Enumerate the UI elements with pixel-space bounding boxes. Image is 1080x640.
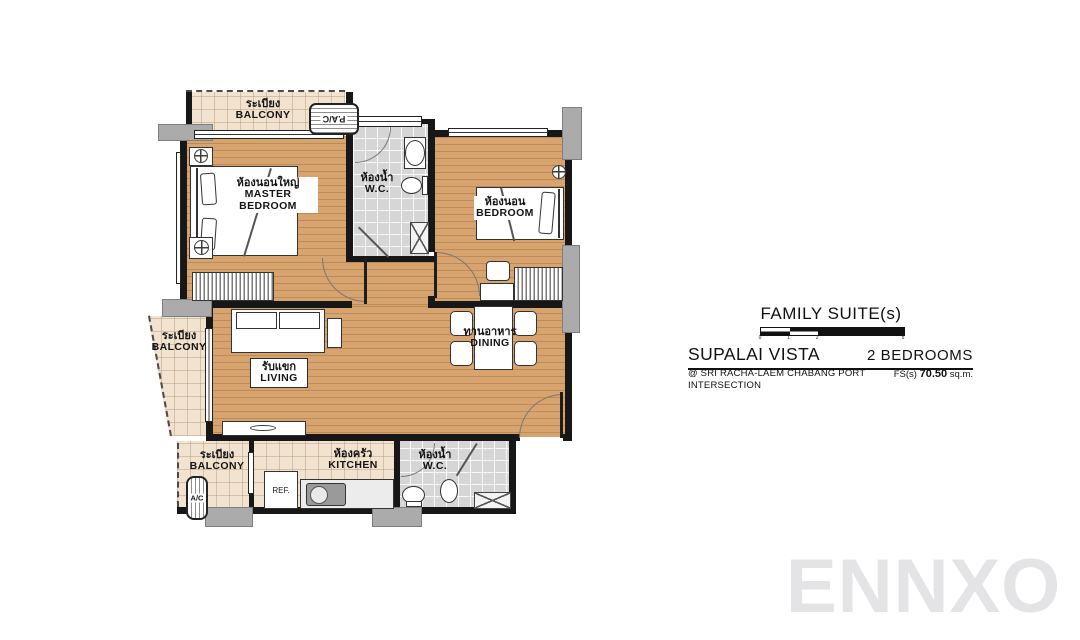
area-value: 70.50 <box>920 368 948 380</box>
master-pillow-1 <box>200 173 217 206</box>
bedroom-desk <box>480 283 514 301</box>
sink-basin <box>310 486 328 504</box>
scale-tick: 5 <box>902 335 905 341</box>
master-bedroom-label-en2: BEDROOM <box>218 201 318 213</box>
wc-top-toilet-tank <box>422 176 428 195</box>
location-line-1: @ SRI RACHA-LAEM CHABANG PORT <box>688 368 865 380</box>
unit-area: FS(s) 70.50 sq.m. <box>894 368 973 393</box>
balcony-bottom-label: ระเบียง BALCONY <box>186 449 248 473</box>
floor-plan-page: ห้องนอนใหญ่ MASTER BEDROOM ระเบียง BALCO… <box>0 0 1080 640</box>
wall-balcony-top-left <box>186 92 192 128</box>
dining-label: ทานอาหาร DINING <box>446 326 534 350</box>
column-west-mid <box>162 299 212 317</box>
scale-ticks: 0 1 2 5 <box>760 335 903 341</box>
bedroom-label: ห้องนอน BEDROOM <box>474 196 536 220</box>
bedroom-chair <box>486 261 510 281</box>
ac-unit-top-label: P.A/C <box>321 114 348 124</box>
wall-west <box>180 130 187 308</box>
living-label-en: LIVING <box>254 373 304 385</box>
window-kitchen-balcony <box>248 452 254 494</box>
unit-type-title: FAMILY SUITE(s) <box>738 304 924 324</box>
project-name: SUPALAI VISTA <box>688 344 820 365</box>
wc-top-shaft <box>410 222 429 254</box>
bedroom-wardrobe <box>514 267 563 301</box>
refrigerator-label: REF. <box>272 486 289 495</box>
wall-living-south-b <box>563 434 572 441</box>
balcony-bottom-railing <box>177 443 179 507</box>
wc-top-label: ห้องน้ำ W.C. <box>354 172 400 196</box>
window-master-west <box>176 152 181 284</box>
bedroom-bed-headboard <box>558 189 560 238</box>
balcony-top-label-en: BALCONY <box>226 110 300 122</box>
area-unit: sq.m. <box>950 369 973 380</box>
kitchen-sink <box>306 483 346 506</box>
balcony-bottom-label-en: BALCONY <box>186 461 248 473</box>
window-wc-top <box>358 116 422 127</box>
wc-bottom-label: ห้องน้ำ W.C. <box>408 449 462 473</box>
kitchen-label-en: KITCHEN <box>314 460 392 472</box>
living-sofa-cushion-1 <box>236 312 277 329</box>
scale-bar-segment <box>790 328 819 335</box>
wc-top-toilet <box>401 177 422 194</box>
scale-tick: 1 <box>787 335 790 341</box>
door-entry-leaf <box>560 392 563 438</box>
bedroom-count: 2 BEDROOMS <box>867 347 973 364</box>
master-bedroom-label: ห้องนอนใหญ่ MASTER BEDROOM <box>218 177 318 213</box>
balcony-top-railing <box>186 90 345 92</box>
balcony-top-label: ระเบียง BALCONY <box>226 98 300 122</box>
scale-tick: 0 <box>759 335 762 341</box>
wc-bottom-label-en: W.C. <box>408 461 462 473</box>
project-location: @ SRI RACHA-LAEM CHABANG PORT INTERSECTI… <box>688 368 865 393</box>
scale-bar-segment <box>818 328 904 335</box>
bedroom-label-en: BEDROOM <box>474 208 536 220</box>
column-south-mid <box>372 507 422 527</box>
title-block: FAMILY SUITE(s) 0 1 2 5 SUPALAI VISTA 2 … <box>680 298 976 398</box>
kitchen-label: ห้องครัว KITCHEN <box>314 448 392 472</box>
living-tv <box>250 425 276 431</box>
column-east-mid <box>562 245 580 333</box>
balcony-left-label: ระเบียง BALCONY <box>150 330 208 354</box>
project-row: SUPALAI VISTA 2 BEDROOMS <box>688 344 973 370</box>
scale-tick: 2 <box>816 335 819 341</box>
wc-bottom-basin <box>440 479 458 503</box>
wc-bottom-toilet-tank <box>406 501 422 507</box>
ceiling-fan-icon <box>194 149 208 163</box>
master-wardrobe <box>192 272 274 301</box>
ac-unit-bottom-label: A/C <box>189 494 206 503</box>
wc-top-basin <box>405 140 425 166</box>
living-side-table <box>327 318 342 348</box>
ceiling-fan-icon <box>194 240 209 255</box>
door-bedroom-leaf <box>434 252 437 298</box>
detail-row: @ SRI RACHA-LAEM CHABANG PORT INTERSECTI… <box>688 368 973 393</box>
scale-bar-segment <box>761 328 790 335</box>
wall-wc-bottom-west <box>394 439 400 509</box>
ennxo-watermark: ENNXO <box>786 543 1076 630</box>
refrigerator: REF. <box>264 471 298 509</box>
column-south-left <box>205 507 253 527</box>
column-northeast <box>562 107 582 160</box>
wc-top-label-en: W.C. <box>354 184 400 196</box>
area-label: FS(s) <box>894 369 917 380</box>
wall-wc-east <box>428 119 435 252</box>
location-line-2: INTERSECTION <box>688 380 865 392</box>
wc-bottom-shower-tray <box>474 492 511 509</box>
dining-label-en: DINING <box>446 338 534 350</box>
ac-condenser-unit-top: P.A/C <box>309 103 359 135</box>
ac-condenser-unit-bottom: A/C <box>186 476 208 520</box>
door-master-bedroom-leaf <box>364 258 367 304</box>
living-sofa-cushion-2 <box>279 312 320 329</box>
ceiling-fan-icon <box>552 165 566 179</box>
window-bedroom-north <box>448 128 548 137</box>
balcony-left-label-en: BALCONY <box>150 342 208 354</box>
living-label: รับแขก LIVING <box>250 358 308 388</box>
